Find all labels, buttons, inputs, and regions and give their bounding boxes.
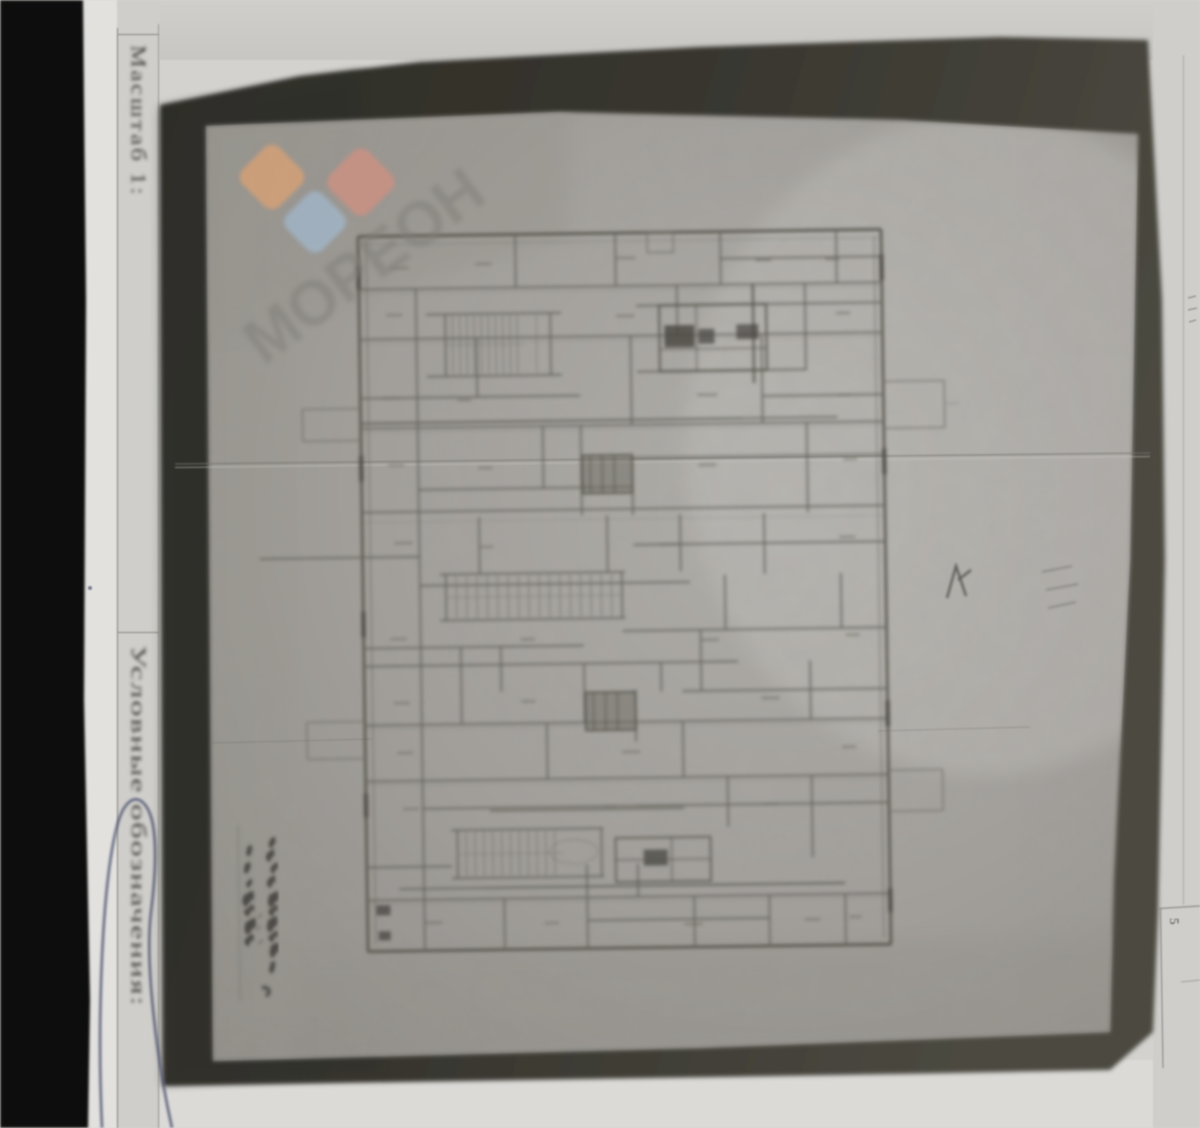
svg-text:Условные обозначения:: Условные обозначения: — [127, 645, 151, 1007]
svg-text:Масштаб 1:: Масштаб 1: — [127, 45, 151, 197]
svg-text:5: 5 — [1167, 918, 1182, 925]
